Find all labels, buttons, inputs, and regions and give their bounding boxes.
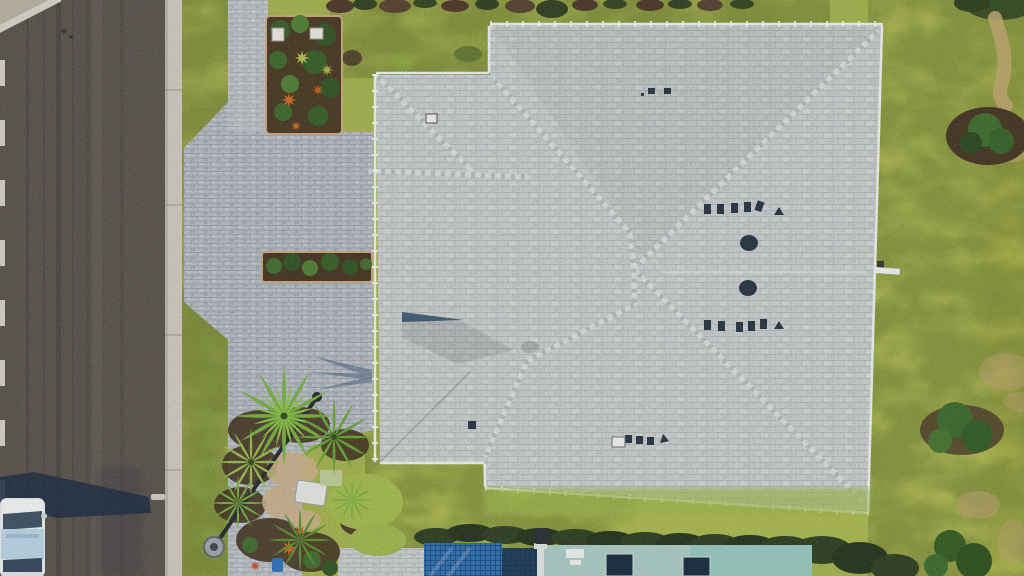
photo-grain-dark [0, 0, 1024, 576]
scene-canvas [0, 0, 1024, 576]
aerial-photo [0, 0, 1024, 576]
